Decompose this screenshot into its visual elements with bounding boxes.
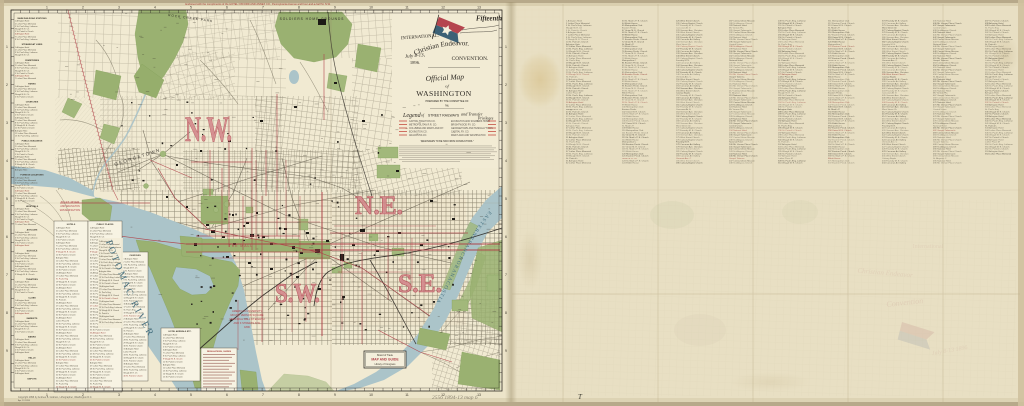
svg-text:CAPITAL RY. CO.: CAPITAL RY. CO. <box>451 131 470 134</box>
svg-text:47 Luther Place Memorial: 47 Luther Place Memorial <box>90 364 113 367</box>
svg-text:15 St. Patrick's Church: 15 St. Patrick's Church <box>163 375 183 378</box>
svg-text:STEAMBOAT LINES: STEAMBOAT LINES <box>22 43 43 46</box>
svg-text:1 Arlington Hotel: 1 Arlington Hotel <box>15 46 30 49</box>
svg-text:34 Waugh M. E. Church: 34 Waugh M. E. Church <box>124 356 144 359</box>
svg-text:2 Luther Place Memorial: 2 Luther Place Memorial <box>15 88 37 91</box>
svg-text:45 St. Patrick's Church: 45 St. Patrick's Church <box>90 358 110 361</box>
svg-text:27 Luther Place Memorial: 27 Luther Place Memorial <box>124 335 146 338</box>
svg-text:50 St. Patrick's Church: 50 St. Patrick's Church <box>56 373 76 376</box>
svg-text:Fifteenth: Fifteenth <box>476 16 502 23</box>
svg-text:6 Arlington Hotel: 6 Arlington Hotel <box>15 265 30 268</box>
svg-text:12 Luther Place Memorial: 12 Luther Place Memorial <box>56 259 79 262</box>
svg-text:5 St. Patrick's Church: 5 St. Patrick's Church <box>15 291 34 294</box>
svg-text:34 Waugh M. E. Church: 34 Waugh M. E. Church <box>56 326 77 328</box>
svg-text:6: 6 <box>6 235 8 239</box>
svg-text:14 Waugh M. E. Church: 14 Waugh M. E. Church <box>99 279 119 282</box>
svg-text:'96.: '96. <box>445 104 450 108</box>
svg-text:9: 9 <box>334 393 336 397</box>
svg-text:3 St. Paul's Eng. Lutheran: 3 St. Paul's Eng. Lutheran <box>56 232 78 235</box>
svg-text:3 St. Paul's Eng. Lutheran: 3 St. Paul's Eng. Lutheran <box>15 109 37 112</box>
svg-text:FOREIGN LEGATIONS: FOREIGN LEGATIONS <box>20 174 44 177</box>
svg-text:2 Luther Place Memorial: 2 Luther Place Memorial <box>15 302 37 305</box>
svg-text:Arlington Hote: Arlington Hote <box>90 361 102 364</box>
svg-text:3 St. Paul's Eng. Lutheran: 3 St. Paul's Eng. Lutheran <box>15 343 37 346</box>
svg-text:42 Luther Place Memorial: 42 Luther Place Memorial <box>56 349 79 352</box>
svg-text:Waugh M. E. Ch: Waugh M. E. Ch <box>15 55 29 57</box>
svg-text:2 Luther Place Memorial: 2 Luther Place Memorial <box>15 341 37 344</box>
svg-text:2 Luther Place Memorial: 2 Luther Place Memorial <box>124 260 145 263</box>
svg-text:ECKINGTON CO.: ECKINGTON CO. <box>409 132 428 134</box>
svg-text:124 Ebbitt House: 124 Ebbitt House <box>622 162 640 165</box>
svg-text:8: 8 <box>505 311 507 315</box>
svg-text:7 Luther Place Memorial: 7 Luther Place Memorial <box>15 77 37 80</box>
svg-text:SOLDIERS HOME GROUNDS: SOLDIERS HOME GROUNDS <box>280 17 345 21</box>
svg-text:40 St. Patrick's Church: 40 St. Patrick's Church <box>90 343 110 346</box>
svg-text:37 Luther Place Memorial: 37 Luther Place Memorial <box>56 334 79 337</box>
svg-text:186 Calvary Baptist Church: 186 Calvary Baptist Church <box>676 162 703 165</box>
svg-text:HOTELS: HOTELS <box>67 224 76 226</box>
svg-text:AND K STREETS N.W.: AND K STREETS N.W. <box>234 321 261 325</box>
svg-text:310 Waugh M. E. Church: 310 Waugh M. E. Church <box>778 162 803 165</box>
svg-text:43 St. Paul's Eng. Lutheran: 43 St. Paul's Eng. Lutheran <box>56 352 80 355</box>
svg-text:8 St. Paul's Eng. Lutheran: 8 St. Paul's Eng. Lutheran <box>56 247 78 250</box>
svg-text:48 St. Paul's Eng. Lutheran: 48 St. Paul's Eng. Lutheran <box>90 367 114 370</box>
svg-text:3 St. Paul's Eng. Lutheran: 3 St. Paul's Eng. Lutheran <box>15 325 37 328</box>
svg-text:METROPOLITAN R.R. CO.: METROPOLITAN R.R. CO. <box>409 124 437 127</box>
svg-text:20 St. Patrick's Church: 20 St. Patrick's Church <box>99 297 118 300</box>
svg-text:62 Luther Place Memorial: 62 Luther Place Memorial <box>566 162 591 165</box>
svg-text:2 Luther Place Memorial: 2 Luther Place Memorial <box>15 255 37 258</box>
svg-text:Luther Place M: Luther Place M <box>124 350 137 353</box>
svg-text:3 St. Paul's Eng. Lutheran: 3 St. Paul's Eng. Lutheran <box>124 263 146 266</box>
svg-text:9: 9 <box>505 349 507 353</box>
svg-text:47 Luther Place Memorial: 47 Luther Place Memorial <box>56 364 79 367</box>
svg-text:7: 7 <box>262 393 264 397</box>
svg-text:7 Luther Place Memorial: 7 Luther Place Memorial <box>15 268 37 271</box>
svg-text:17 Luther Place Memorial: 17 Luther Place Memorial <box>99 288 121 291</box>
svg-text:51 Arlington Hotel: 51 Arlington Hotel <box>56 376 72 379</box>
svg-text:3 St. Paul's Eng. Lutheran: 3 St. Paul's Eng. Lutheran <box>15 236 37 239</box>
svg-text:22 Luther Place Memorial: 22 Luther Place Memorial <box>99 303 121 306</box>
svg-text:5 St. Patrick's Church: 5 St. Patrick's Church <box>163 345 182 348</box>
svg-text:35 St. Patrick's Church: 35 St. Patrick's Church <box>90 328 110 331</box>
svg-text:6 Arlington Hotel: 6 Arlington Hotel <box>15 221 30 224</box>
svg-text:10 St. Patrick's Church: 10 St. Patrick's Church <box>15 200 35 203</box>
svg-text:6 Arlington Hotel: 6 Arlington Hotel <box>15 351 30 354</box>
svg-text:St. Patrick's: St. Patrick's <box>99 312 109 315</box>
svg-text:GEORGETOWN AND TENNALLYTOWN: GEORGETOWN AND TENNALLYTOWN <box>451 127 493 130</box>
svg-text:7: 7 <box>6 273 8 277</box>
svg-text:Library of Congress: Library of Congress <box>375 363 397 366</box>
svg-text:CAPITAL TRACTION CO.: CAPITAL TRACTION CO. <box>409 120 436 123</box>
svg-text:45 St. Patrick's Church: 45 St. Patrick's Church <box>56 358 76 361</box>
svg-text:11: 11 <box>405 6 409 10</box>
svg-text:PARKS: PARKS <box>28 82 36 85</box>
svg-text:14 Waugh M. E. Church: 14 Waugh M. E. Church <box>56 266 77 268</box>
svg-text:1: 1 <box>6 45 8 49</box>
svg-text:12: 12 <box>441 6 445 10</box>
svg-text:7 Luther Place Memorial: 7 Luther Place Memorial <box>15 35 37 38</box>
svg-text:13 St. Paul's Eng. Lutheran: 13 St. Paul's Eng. Lutheran <box>15 135 39 138</box>
svg-text:1 Arlington Hotel: 1 Arlington Hotel <box>15 252 30 255</box>
svg-text:31 Arlington Hotel: 31 Arlington Hotel <box>56 316 72 319</box>
svg-text:10: 10 <box>369 6 373 10</box>
svg-text:4: 4 <box>154 393 156 397</box>
svg-text:40 St. Patrick's Church: 40 St. Patrick's Church <box>56 343 76 346</box>
svg-text:CHURCHES: CHURCHES <box>26 102 39 104</box>
svg-text:DEPOTS: DEPOTS <box>28 378 38 380</box>
svg-text:CHURCHES: CHURCHES <box>129 255 141 257</box>
svg-text:6 Arlington Hotel: 6 Arlington Hotel <box>15 312 30 315</box>
svg-text:2 Luther Place Memorial: 2 Luther Place Memorial <box>15 323 37 326</box>
svg-text:3 St. Paul's Eng. Lutheran: 3 St. Paul's Eng. Lutheran <box>15 25 37 28</box>
svg-text:1896.: 1896. <box>410 60 420 65</box>
svg-text:International: International <box>913 244 944 250</box>
svg-text:MOUNT VERNON SQUARE: MOUNT VERNON SQUARE <box>231 313 264 317</box>
svg-text:1: 1 <box>46 6 48 10</box>
svg-text:23 St. Paul's Eng. Lutheran: 23 St. Paul's Eng. Lutheran <box>56 292 80 295</box>
svg-text:5 St. Patrick's Church: 5 St. Patrick's Church <box>15 262 34 265</box>
svg-text:33 St. Paul's Eng. Lutheran: 33 St. Paul's Eng. Lutheran <box>124 353 147 356</box>
svg-text:19 Waugh M. E. Church: 19 Waugh M. E. Church <box>99 294 119 297</box>
svg-text:1 Arlington Hotel: 1 Arlington Hotel <box>15 20 30 23</box>
svg-text:5 St. Patrick's Church: 5 St. Patrick's Church <box>15 30 34 33</box>
svg-text:248 St. Aloysius Church: 248 St. Aloysius Church <box>729 162 753 165</box>
svg-text:22 Luther Place Memorial: 22 Luther Place Memorial <box>56 289 79 292</box>
svg-text:41 Arlington Hotel: 41 Arlington Hotel <box>56 346 72 349</box>
svg-text:3 St. Paul's Eng. Lutheran: 3 St. Paul's Eng. Lutheran <box>15 257 37 260</box>
svg-text:36 Arlington Hotel: 36 Arlington Hotel <box>90 331 106 334</box>
svg-text:6 Arlington Hotel: 6 Arlington Hotel <box>15 116 30 119</box>
svg-text:10: 10 <box>369 393 373 397</box>
svg-text:HOTEL ARRIVALS ETC.: HOTEL ARRIVALS ETC. <box>168 330 192 333</box>
svg-text:31 Arlington Hotel: 31 Arlington Hotel <box>124 347 140 350</box>
svg-text:THEATRES: THEATRES <box>26 278 38 281</box>
svg-text:St. Patrick's: St. Patrick's <box>124 329 134 332</box>
svg-text:11: 11 <box>405 393 409 397</box>
svg-text:3: 3 <box>118 6 120 10</box>
svg-text:MEMORIAL HALL AT EIGHTH: MEMORIAL HALL AT EIGHTH <box>229 317 264 321</box>
svg-text:14 Waugh M. E. Church: 14 Waugh M. E. Church <box>163 373 184 375</box>
svg-text:5: 5 <box>6 197 8 201</box>
svg-text:Legend: Legend <box>402 113 422 119</box>
svg-text:MARYLAND AND WASHINGTON: MARYLAND AND WASHINGTON <box>451 134 486 137</box>
svg-text:28 St. Paul's Eng. Lutheran: 28 St. Paul's Eng. Lutheran <box>124 338 147 341</box>
svg-text:13: 13 <box>477 393 481 397</box>
svg-text:2: 2 <box>6 83 8 87</box>
svg-text:WASHINGTON: WASHINGTON <box>60 208 81 212</box>
svg-text:5 St. Patrick's Church: 5 St. Patrick's Church <box>15 95 34 98</box>
svg-text:48 St. Paul's Eng. Lutheran: 48 St. Paul's Eng. Lutheran <box>56 367 80 370</box>
svg-text:5 St. Patrick's Church: 5 St. Patrick's Church <box>56 238 75 241</box>
svg-text:Waugh M. E. Ch: Waugh M. E. Ch <box>56 341 70 343</box>
svg-text:5: 5 <box>190 393 192 397</box>
svg-text:1 Arlington Hotel: 1 Arlington Hotel <box>15 231 30 234</box>
svg-text:1 Arlington Hotel: 1 Arlington Hotel <box>15 62 30 65</box>
svg-text:8 St. Paul's Eng. Lutheran: 8 St. Paul's Eng. Lutheran <box>15 270 37 273</box>
svg-text:28 St. Paul's Eng. Lutheran: 28 St. Paul's Eng. Lutheran <box>56 307 80 310</box>
svg-text:5 St. Patrick's Church: 5 St. Patrick's Church <box>15 309 34 312</box>
svg-text:6 Arlington Hotel: 6 Arlington Hotel <box>56 241 71 244</box>
svg-text:8 St. Paul's Eng. Lutheran: 8 St. Paul's Eng. Lutheran <box>15 122 37 125</box>
svg-text:38 St. Paul's Eng. Lutheran: 38 St. Paul's Eng. Lutheran <box>90 337 114 340</box>
svg-text:4: 4 <box>154 6 156 10</box>
svg-text:Apr 23 1896: Apr 23 1896 <box>18 399 31 402</box>
svg-text:13 St. Paul's Eng. Lutheran: 13 St. Paul's Eng. Lutheran <box>163 369 187 372</box>
svg-text:5: 5 <box>505 197 507 201</box>
svg-text:1 Arlington Hotel: 1 Arlington Hotel <box>15 85 30 88</box>
svg-text:42 Luther Place Memorial: 42 Luther Place Memorial <box>90 349 113 352</box>
svg-text:44 Waugh M. E. Church: 44 Waugh M. E. Church <box>56 356 77 358</box>
svg-text:1 Arlington Hotel: 1 Arlington Hotel <box>163 333 178 336</box>
svg-text:23 St. Paul's Eng. Lutheran: 23 St. Paul's Eng. Lutheran <box>99 306 122 309</box>
svg-text:3 St. Paul's Eng. Lutheran: 3 St. Paul's Eng. Lutheran <box>15 51 37 54</box>
svg-text:27 Luther Place Memorial: 27 Luther Place Memorial <box>99 318 121 321</box>
svg-text:3 St. Paul's Eng. Lutheran: 3 St. Paul's Eng. Lutheran <box>15 304 37 307</box>
svg-text:2 Luther Place Memorial: 2 Luther Place Memorial <box>15 106 37 109</box>
svg-text:35 St. Patrick's Church: 35 St. Patrick's Church <box>56 328 76 331</box>
svg-text:3 St. Paul's Eng. Lutheran: 3 St. Paul's Eng. Lutheran <box>15 213 37 216</box>
svg-text:40 St. Patrick's Church: 40 St. Patrick's Church <box>124 374 143 377</box>
svg-text:8 St. Paul's Eng. Lutheran: 8 St. Paul's Eng. Lutheran <box>15 195 37 198</box>
svg-text:8 St. Paul's Eng. Lutheran: 8 St. Paul's Eng. Lutheran <box>15 38 37 41</box>
svg-text:2 Luther Place Memorial: 2 Luther Place Memorial <box>163 336 185 339</box>
svg-text:2 Luther Place Memorial: 2 Luther Place Memorial <box>56 229 78 232</box>
svg-text:St. Paul's Eng: St. Paul's Eng <box>56 277 68 280</box>
svg-text:37 Luther Place Memorial: 37 Luther Place Memorial <box>90 334 113 337</box>
svg-text:4: 4 <box>6 159 8 163</box>
svg-text:Arlington Hote: Arlington Hote <box>15 129 27 132</box>
svg-text:3: 3 <box>6 121 8 125</box>
svg-text:12 Luther Place Memorial: 12 Luther Place Memorial <box>15 132 38 135</box>
svg-text:6 Arlington Hotel: 6 Arlington Hotel <box>15 33 30 36</box>
svg-text:30 St. Patrick's Church: 30 St. Patrick's Church <box>124 344 143 347</box>
svg-text:REGULATIONS, GUIDES: REGULATIONS, GUIDES <box>207 350 232 353</box>
svg-text:2556 1894-13 map 6: 2556 1894-13 map 6 <box>432 394 478 401</box>
svg-text:Luther Place M: Luther Place M <box>56 319 69 322</box>
svg-text:1 Arlington Hotel: 1 Arlington Hotel <box>15 142 30 145</box>
svg-text:St. Paul's Eng: St. Paul's Eng <box>56 382 68 385</box>
svg-text:16 Arlington Hotel: 16 Arlington Hotel <box>99 285 115 288</box>
svg-text:6 Arlington Hotel: 6 Arlington Hotel <box>15 244 30 247</box>
svg-text:2 Luther Place Memorial: 2 Luther Place Memorial <box>15 22 37 25</box>
svg-text:8 St. Paul's Eng. Lutheran: 8 St. Paul's Eng. Lutheran <box>15 161 37 164</box>
svg-text:24 Waugh M. E. Church: 24 Waugh M. E. Church <box>56 296 77 298</box>
svg-text:Waugh M. E. Ch: Waugh M. E. Ch <box>124 267 138 269</box>
svg-text:1 Arlington Hotel: 1 Arlington Hotel <box>90 226 105 229</box>
svg-text:STREET RAILWAYS: STREET RAILWAYS <box>428 114 460 118</box>
svg-text:CEMETERIES: CEMETERIES <box>25 60 40 62</box>
svg-text:26 Arlington Hotel: 26 Arlington Hotel <box>99 315 115 318</box>
svg-text:51 Arlington Hotel: 51 Arlington Hotel <box>90 376 106 379</box>
svg-text:6 Arlington Hotel: 6 Arlington Hotel <box>15 75 30 78</box>
svg-text:Waugh M. E. Ch: Waugh M. E. Ch <box>124 372 138 374</box>
svg-text:ECKINGTON AND SOLDIERS HOME: ECKINGTON AND SOLDIERS HOME <box>451 120 490 123</box>
svg-text:50 St. Patrick's Church: 50 St. Patrick's Church <box>90 373 110 376</box>
svg-text:1 Arlington Hotel: 1 Arlington Hotel <box>15 103 30 106</box>
svg-text:26 Arlington Hotel: 26 Arlington Hotel <box>56 301 72 304</box>
svg-text:4: 4 <box>505 159 507 163</box>
svg-text:2 Luther Place Memorial: 2 Luther Place Memorial <box>15 64 37 67</box>
svg-text:3 St. Paul's Eng. Lutheran: 3 St. Paul's Eng. Lutheran <box>163 339 185 342</box>
svg-text:49 Waugh M. E. Church: 49 Waugh M. E. Church <box>56 371 77 373</box>
svg-text:5 St. Patrick's Church: 5 St. Patrick's Church <box>15 370 34 373</box>
svg-text:St. Patrick's: St. Patrick's <box>56 298 66 301</box>
svg-text:21 Arlington Hotel: 21 Arlington Hotel <box>99 300 115 303</box>
svg-text:49 Waugh M. E. Church: 49 Waugh M. E. Church <box>90 371 111 373</box>
svg-text:9 Waugh M. E. Church: 9 Waugh M. E. Church <box>15 274 35 276</box>
svg-text:9: 9 <box>6 349 8 353</box>
svg-text:Arlington Hote: Arlington Hote <box>56 256 68 259</box>
svg-text:6 Arlington Hotel: 6 Arlington Hotel <box>15 189 30 192</box>
svg-text:5 St. Patrick's Church: 5 St. Patrick's Church <box>15 349 34 352</box>
svg-text:9 Waugh M. E. Church: 9 Waugh M. E. Church <box>163 358 183 360</box>
svg-text:1 Arlington Hotel: 1 Arlington Hotel <box>56 226 71 229</box>
svg-text:1896: 1896 <box>244 325 250 329</box>
svg-text:9: 9 <box>334 6 336 10</box>
svg-text:44 Waugh M. E. Church: 44 Waugh M. E. Church <box>90 356 111 358</box>
svg-text:2: 2 <box>505 83 507 87</box>
svg-text:26 Arlington Hotel: 26 Arlington Hotel <box>124 332 140 335</box>
svg-text:1 Arlington Hotel: 1 Arlington Hotel <box>15 359 30 362</box>
svg-text:37 Luther Place Memorial: 37 Luther Place Memorial <box>124 365 146 368</box>
svg-text:S.W.: S.W. <box>275 278 320 308</box>
svg-text:3 St. Paul's Eng. Lutheran: 3 St. Paul's Eng. Lutheran <box>15 286 37 289</box>
svg-text:5 St. Patrick's Church: 5 St. Patrick's Church <box>15 114 34 117</box>
svg-text:3 St. Paul's Eng. Lutheran: 3 St. Paul's Eng. Lutheran <box>90 232 112 235</box>
svg-text:AMERICAN UNIVERSITY: AMERICAN UNIVERSITY <box>232 309 262 313</box>
svg-text:“TRANSFERS TO BE HAD FROM COND: “TRANSFERS TO BE HAD FROM CONDUCTORS.” <box>420 140 474 143</box>
svg-text:8 St. Paul's Eng. Lutheran: 8 St. Paul's Eng. Lutheran <box>163 354 185 357</box>
svg-text:13 St. Paul's Eng. Lutheran: 13 St. Paul's Eng. Lutheran <box>56 262 80 265</box>
svg-text:2 Luther Place Memorial: 2 Luther Place Memorial <box>15 179 37 182</box>
svg-text:10 St. Patrick's Church: 10 St. Patrick's Church <box>56 253 76 256</box>
svg-text:10 St. Patrick's Church: 10 St. Patrick's Church <box>163 360 183 363</box>
svg-text:Arlington Hote: Arlington Hote <box>99 270 111 273</box>
svg-text:PUBLIC PLACES: PUBLIC PLACES <box>97 223 114 226</box>
svg-text:COLUMBIA AND MARYLAND RY.: COLUMBIA AND MARYLAND RY. <box>409 127 444 130</box>
svg-text:554 Luther Place Memorial: 554 Luther Place Memorial <box>985 152 1012 155</box>
svg-text:30 St. Patrick's Church: 30 St. Patrick's Church <box>56 313 76 316</box>
svg-text:13: 13 <box>477 6 481 10</box>
svg-text:WASHINGTON: WASHINGTON <box>416 89 471 98</box>
svg-text:36 Arlington Hotel: 36 Arlington Hotel <box>56 331 72 334</box>
svg-text:2 Luther Place Memorial: 2 Luther Place Memorial <box>90 229 112 232</box>
svg-text:52 Luther Place Memorial: 52 Luther Place Memorial <box>90 379 113 382</box>
svg-text:SCHOOLS: SCHOOLS <box>27 250 38 252</box>
svg-text:MARKETS: MARKETS <box>27 317 38 320</box>
svg-text:Waugh M. E. Ch: Waugh M. E. Ch <box>90 341 104 343</box>
svg-text:1 Arlington Hotel: 1 Arlington Hotel <box>15 176 30 179</box>
svg-text:5 St. Patrick's Church: 5 St. Patrick's Church <box>15 330 34 333</box>
svg-text:9 Waugh M. E. Church: 9 Waugh M. E. Church <box>56 251 76 253</box>
svg-text:Privileges: Privileges <box>477 117 494 121</box>
svg-text:17 Luther Place Memorial: 17 Luther Place Memorial <box>56 274 79 277</box>
svg-text:1 Arlington Hotel: 1 Arlington Hotel <box>15 338 30 341</box>
svg-text:3: 3 <box>505 121 507 125</box>
svg-text:3: 3 <box>118 393 120 397</box>
svg-text:12 Luther Place Memorial: 12 Luther Place Memorial <box>163 366 186 369</box>
svg-text:1 Arlington Hotel: 1 Arlington Hotel <box>15 299 30 302</box>
svg-text:10 St. Patrick's Church: 10 St. Patrick's Church <box>15 166 35 169</box>
svg-text:1 Arlington Hotel: 1 Arlington Hotel <box>124 257 138 260</box>
svg-text:ASYLUMS: ASYLUMS <box>27 228 38 231</box>
svg-text:7 Luther Place Memorial: 7 Luther Place Memorial <box>15 192 37 195</box>
svg-text:BANKS: BANKS <box>28 336 36 339</box>
svg-text:HOSPITALS: HOSPITALS <box>26 205 39 208</box>
svg-text:7 Luther Place Memorial: 7 Luther Place Memorial <box>56 244 78 247</box>
svg-text:Endorsed with the compliments: Endorsed with the compliments of the HOT… <box>185 2 331 6</box>
svg-text:2 Luther Place Memorial: 2 Luther Place Memorial <box>15 48 37 51</box>
svg-text:24 Waugh M. E. Church: 24 Waugh M. E. Church <box>99 309 119 312</box>
svg-text:2 Luther Place Memorial: 2 Luther Place Memorial <box>15 283 37 286</box>
svg-text:HALLS: HALLS <box>28 356 36 359</box>
svg-text:29 Waugh M. E. Church: 29 Waugh M. E. Church <box>56 311 77 313</box>
svg-text:2: 2 <box>82 6 84 10</box>
svg-text:21 Arlington Hotel: 21 Arlington Hotel <box>56 286 72 289</box>
svg-text:3 St. Paul's Eng. Lutheran: 3 St. Paul's Eng. Lutheran <box>15 148 37 151</box>
svg-text:5 St. Patrick's Church: 5 St. Patrick's Church <box>15 187 34 190</box>
svg-text:7: 7 <box>505 273 507 277</box>
svg-text:6: 6 <box>226 393 228 397</box>
svg-text:5 St. Patrick's Church: 5 St. Patrick's Church <box>15 218 34 221</box>
svg-text:2 Luther Place Memorial: 2 Luther Place Memorial <box>15 234 37 237</box>
svg-text:7 Luther Place Memorial: 7 Luther Place Memorial <box>163 351 185 354</box>
svg-text:434 Corcoran Art Gallery: 434 Corcoran Art Gallery <box>882 162 907 165</box>
svg-text:3 St. Paul's Eng. Lutheran: 3 St. Paul's Eng. Lutheran <box>15 364 37 367</box>
svg-text:5 St. Patrick's Church: 5 St. Patrick's Church <box>124 269 142 272</box>
svg-text:Copyright 1896 by Andrew B. Gr: Copyright 1896 by Andrew B. Graham, Lith… <box>18 396 93 399</box>
svg-text:7 Luther Place Memorial: 7 Luther Place Memorial <box>15 158 37 161</box>
svg-text:6 Arlington Hotel: 6 Arlington Hotel <box>15 155 30 158</box>
svg-text:CLUBS: CLUBS <box>28 297 36 299</box>
svg-text:27 Luther Place Memorial: 27 Luther Place Memorial <box>56 304 79 307</box>
svg-text:CONVENTION.: CONVENTION. <box>452 56 489 62</box>
svg-text:19 Waugh M. E. Church: 19 Waugh M. E. Church <box>56 281 77 283</box>
svg-text:Arlington Hote: Arlington Hote <box>15 168 27 171</box>
svg-text:33 St. Paul's Eng. Lutheran: 33 St. Paul's Eng. Lutheran <box>56 322 80 325</box>
svg-text:7 Luther Place Memorial: 7 Luther Place Memorial <box>15 223 37 226</box>
svg-text:Arlington Hote: Arlington Hote <box>163 363 175 366</box>
svg-text:2 Luther Place Memorial: 2 Luther Place Memorial <box>15 362 37 365</box>
svg-text:3 St. Paul's Eng. Lutheran: 3 St. Paul's Eng. Lutheran <box>15 67 37 70</box>
svg-text:Waugh M. E. Ch: Waugh M. E. Ch <box>163 343 177 345</box>
svg-text:15 St. Patrick's Church: 15 St. Patrick's Church <box>56 268 76 271</box>
svg-text:28 St. Paul's Eng. Lutheran: 28 St. Paul's Eng. Lutheran <box>99 321 122 324</box>
svg-text:38 St. Paul's Eng. Lutheran: 38 St. Paul's Eng. Lutheran <box>124 368 147 371</box>
svg-text:N.E.: N.E. <box>355 191 403 220</box>
svg-text:1 Arlington Hotel: 1 Arlington Hotel <box>15 208 30 211</box>
svg-text:41 Arlington Hotel: 41 Arlington Hotel <box>90 346 106 349</box>
svg-text:St. Paul's Eng: St. Paul's Eng <box>90 382 102 385</box>
svg-text:3 St. Paul's Eng. Lutheran: 3 St. Paul's Eng. Lutheran <box>15 90 37 93</box>
svg-text:S.E.: S.E. <box>398 269 442 298</box>
svg-text:20 St. Patrick's Church: 20 St. Patrick's Church <box>56 283 76 286</box>
svg-text:5 St. Patrick's Church: 5 St. Patrick's Church <box>15 242 34 245</box>
svg-text:BRIGHTWOOD RY. CO.: BRIGHTWOOD RY. CO. <box>451 125 476 127</box>
svg-text:16 Arlington Hotel: 16 Arlington Hotel <box>56 271 72 274</box>
svg-text:43 St. Paul's Eng. Lutheran: 43 St. Paul's Eng. Lutheran <box>90 352 114 355</box>
svg-text:Waugh M. E. Ch: Waugh M. E. Ch <box>56 236 70 238</box>
svg-text:6 Arlington Hotel: 6 Arlington Hotel <box>163 348 178 351</box>
svg-text:8: 8 <box>6 311 8 315</box>
svg-text:2 Luther Place Memorial: 2 Luther Place Memorial <box>15 210 37 213</box>
svg-text:MAIN RAILROAD STATIONS: MAIN RAILROAD STATIONS <box>17 17 47 20</box>
svg-text:496 Mt. Vernon Place Church: 496 Mt. Vernon Place Church <box>933 162 962 165</box>
svg-text:THE MALL: THE MALL <box>229 244 254 248</box>
svg-text:1: 1 <box>505 45 507 49</box>
svg-text:36 Arlington Hotel: 36 Arlington Hotel <box>124 362 140 365</box>
